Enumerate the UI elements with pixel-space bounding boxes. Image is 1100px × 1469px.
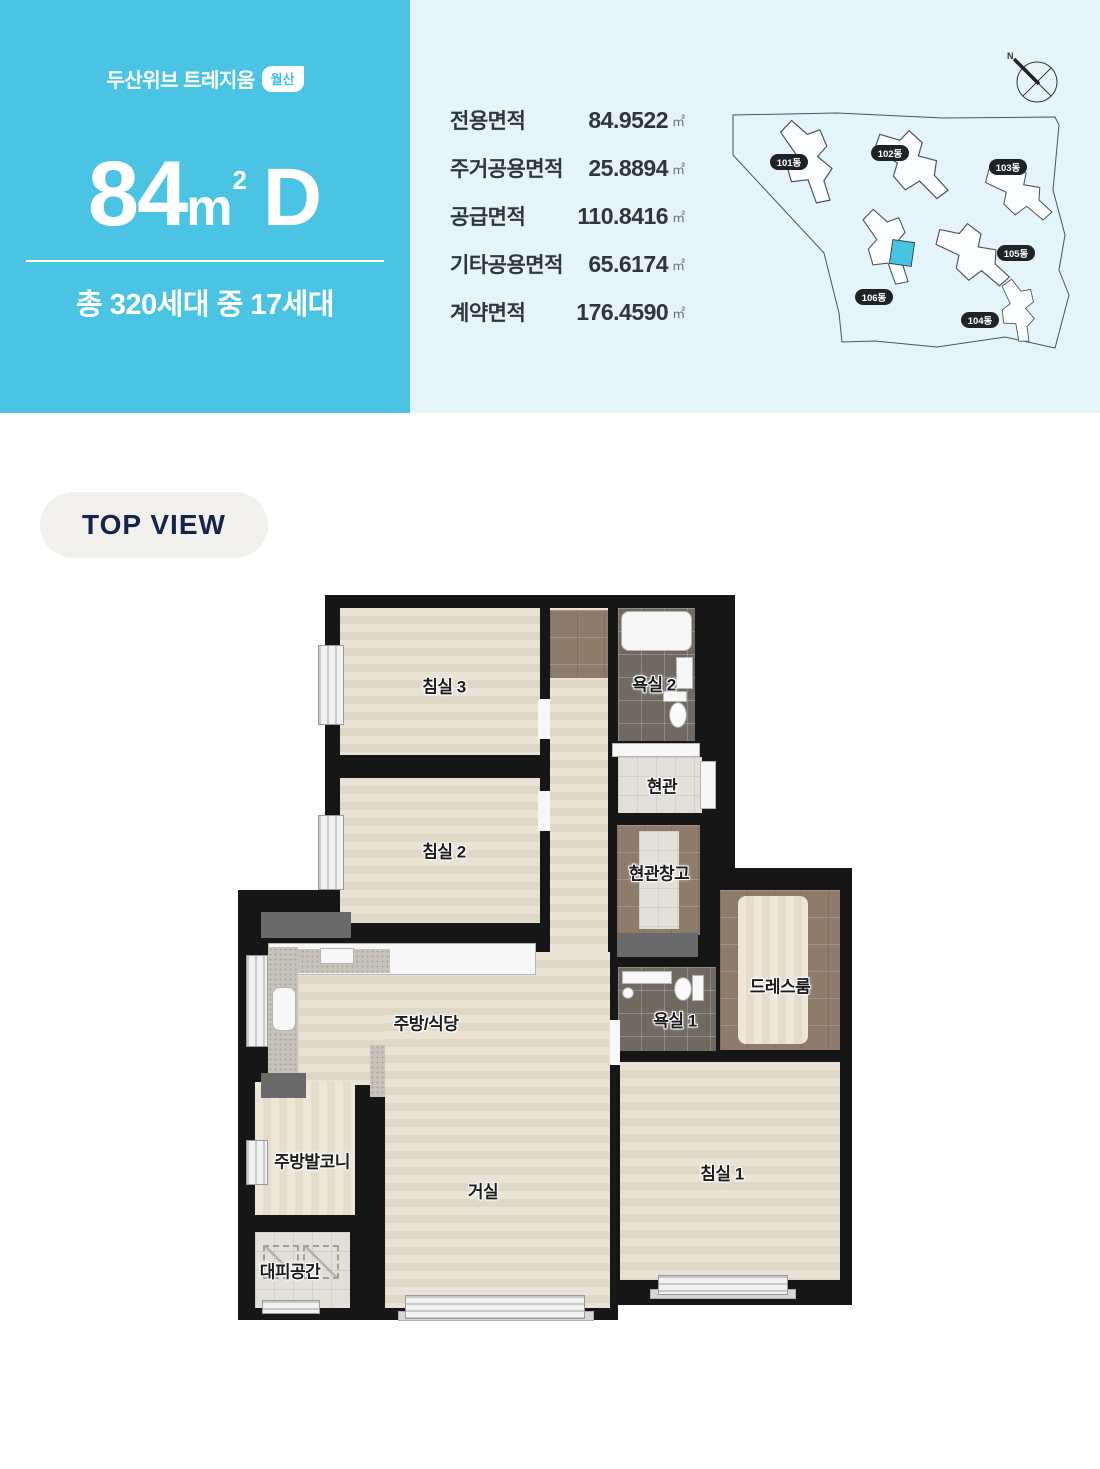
door-bedroom1 <box>610 1020 620 1065</box>
compass-north-label: N <box>1007 51 1014 61</box>
room-living <box>385 1015 610 1308</box>
bathroom2-sink <box>676 657 693 689</box>
toilet-tank <box>692 975 704 1001</box>
label-bedroom1: 침실 1 <box>700 1160 743 1185</box>
building-label-105: 105동 <box>997 245 1035 261</box>
svg-text:106동: 106동 <box>862 293 887 304</box>
unit-summary-panel: 두산위브 트레지움월산 84m2D 총 320세대 중 17세대 <box>0 0 410 413</box>
label-entrance-storage: 현관창고 <box>629 860 690 885</box>
bathroom1-sink <box>622 971 672 984</box>
label-kitchen-balcony: 주방발코니 <box>274 1148 350 1173</box>
area-row: 공급면적 110.8416 ㎡ <box>450 192 688 240</box>
area-label: 기타공용면적 <box>450 249 578 279</box>
area-label: 전용면적 <box>450 105 578 135</box>
unit-type-letter: D <box>263 152 322 243</box>
label-living: 거실 <box>468 1178 498 1203</box>
area-unit: ㎡ <box>672 159 688 178</box>
window-balcony <box>246 1140 268 1185</box>
window-kitchen <box>246 955 268 1047</box>
label-bedroom3: 침실 3 <box>422 673 465 698</box>
area-info-panel: 전용면적 84.9522 ㎡ 주거공용면적 25.8894 ㎡ 공급면적 110… <box>410 0 1100 413</box>
window-bedroom1 <box>658 1275 788 1295</box>
building-102 <box>862 118 963 210</box>
area-unit: ㎡ <box>672 207 688 226</box>
door-bedroom3 <box>538 699 550 739</box>
area-label: 계약면적 <box>450 297 576 327</box>
building-106 <box>849 200 929 292</box>
building-label-101: 101동 <box>770 154 808 170</box>
building-label-106: 106동 <box>855 289 893 305</box>
brand-location-badge: 월산 <box>262 66 304 92</box>
household-count: 총 320세대 중 17세대 <box>0 281 410 323</box>
area-value: 84.9522 <box>578 107 668 134</box>
area-row: 전용면적 84.9522 ㎡ <box>450 96 688 144</box>
area-value: 176.4590 <box>576 299 668 326</box>
entry-sill <box>612 743 700 757</box>
svg-text:103동: 103동 <box>996 163 1021 174</box>
window-bedroom3 <box>318 645 344 725</box>
brand-name: 두산위브 트레지움 <box>106 70 254 92</box>
floor-plan: 침실 3 욕실 2 현관 침실 2 현관창고 드레스룸 욕실 1 주방/식당 주… <box>230 595 852 1325</box>
area-row: 기타공용면적 65.6174 ㎡ <box>450 240 688 288</box>
label-bathroom1: 욕실 1 <box>653 1007 696 1032</box>
label-bathroom2: 욕실 2 <box>632 671 675 696</box>
label-kitchen: 주방/식당 <box>394 1010 459 1035</box>
area-table: 전용면적 84.9522 ㎡ 주거공용면적 25.8894 ㎡ 공급면적 110… <box>450 96 688 336</box>
area-value: 110.8416 <box>577 203 668 230</box>
divider-line <box>26 260 384 262</box>
building-label-102: 102동 <box>871 145 909 161</box>
unit-size-number: 84 <box>88 143 186 245</box>
window-refuge <box>262 1300 320 1314</box>
label-bedroom2: 침실 2 <box>422 838 465 863</box>
svg-text:102동: 102동 <box>878 149 903 160</box>
entrance-door <box>700 761 716 809</box>
label-entrance: 현관 <box>647 773 677 798</box>
area-unit: ㎡ <box>672 303 688 322</box>
window-bedroom2 <box>318 815 344 890</box>
window-living <box>405 1295 585 1319</box>
kitchen-sink <box>272 987 296 1031</box>
svg-text:105동: 105동 <box>1004 249 1029 260</box>
area-value: 25.8894 <box>578 155 668 182</box>
area-row: 주거공용면적 25.8894 ㎡ <box>450 144 688 192</box>
label-dressroom: 드레스룸 <box>750 973 811 998</box>
utility-box <box>261 912 351 938</box>
highlighted-unit <box>889 240 914 267</box>
site-plan: N 101동 102동 103동 104동 105동 106동 <box>725 40 1085 360</box>
utility-box <box>261 1073 306 1098</box>
brand-row: 두산위브 트레지움월산 <box>0 64 410 93</box>
door-bedroom2 <box>538 791 550 831</box>
shower-head <box>622 987 634 999</box>
hall-closet <box>550 610 608 678</box>
building-label-103: 103동 <box>989 159 1027 175</box>
utility-box <box>617 933 698 957</box>
area-row: 계약면적 176.4590 ㎡ <box>450 288 688 336</box>
unit-type-title: 84m2D <box>0 142 410 247</box>
area-label: 공급면적 <box>450 201 577 231</box>
unit-size-superscript: 2 <box>232 165 246 195</box>
svg-text:104동: 104동 <box>968 316 993 327</box>
area-unit: ㎡ <box>672 111 688 130</box>
toilet-bowl <box>674 977 692 1001</box>
cooktop <box>320 948 354 964</box>
bathtub <box>621 611 692 651</box>
area-label: 주거공용면적 <box>450 153 578 183</box>
compass-icon: N <box>1007 51 1057 102</box>
topview-badge: TOP VIEW <box>40 492 268 558</box>
building-label-104: 104동 <box>961 312 999 328</box>
dressroom-floor <box>738 896 808 1044</box>
svg-text:101동: 101동 <box>777 158 802 169</box>
area-value: 65.6174 <box>578 251 668 278</box>
unit-size-unit: m <box>186 179 232 237</box>
label-refuge: 대피공간 <box>260 1258 321 1283</box>
area-unit: ㎡ <box>672 255 688 274</box>
toilet-bowl <box>669 702 687 728</box>
